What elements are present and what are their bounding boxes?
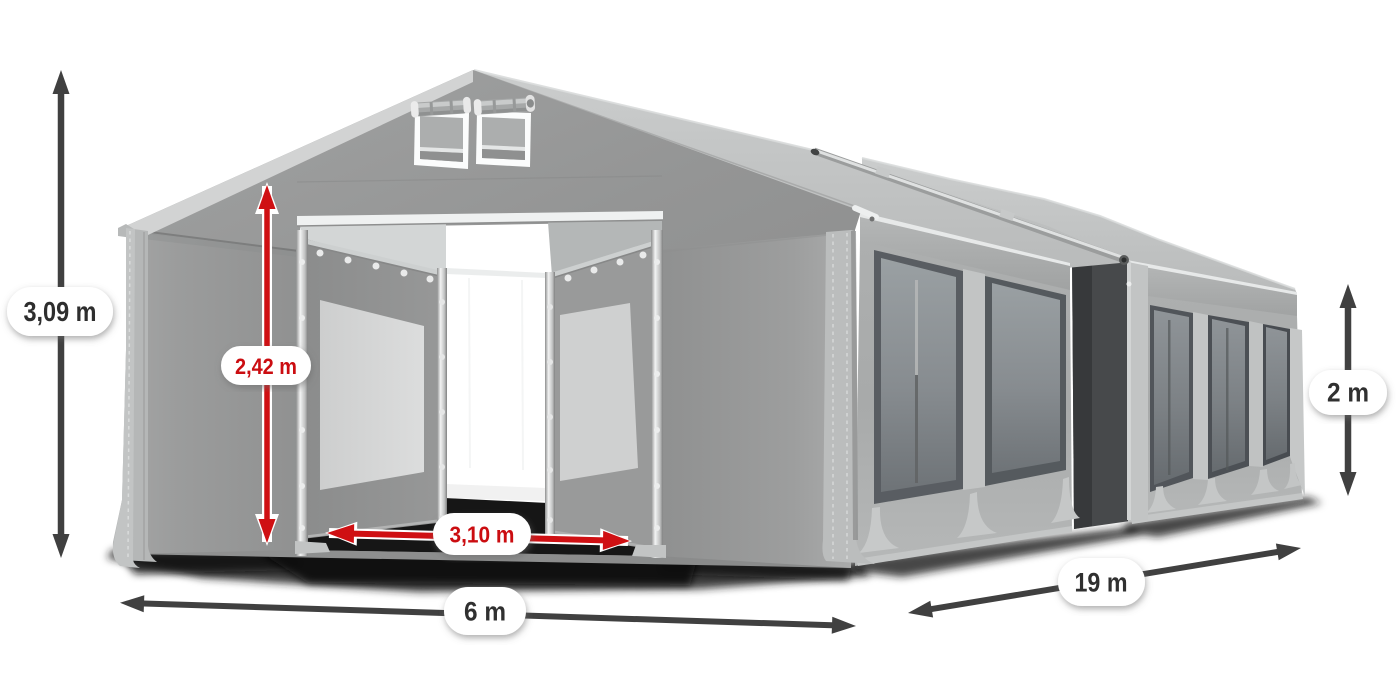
svg-text:6 m: 6 m xyxy=(464,597,506,627)
svg-text:3,09 m: 3,09 m xyxy=(24,296,97,327)
svg-text:19 m: 19 m xyxy=(1075,568,1128,598)
svg-text:2 m: 2 m xyxy=(1327,378,1369,408)
svg-text:2,42 m: 2,42 m xyxy=(235,354,297,379)
svg-text:3,10 m: 3,10 m xyxy=(450,522,515,548)
